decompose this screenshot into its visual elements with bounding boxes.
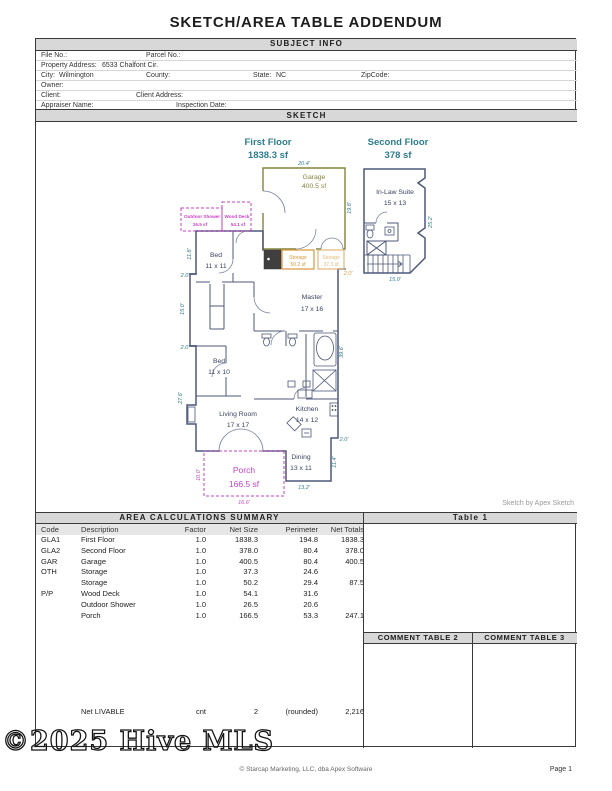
zipcode-label: ZipCode: [361,72,389,79]
state-value: NC [276,72,286,79]
cell-factor: 1.0 [176,535,206,546]
cell-net-totals: 400.5 [318,557,364,568]
outdoor-shower-label: Outdoor Shower [184,214,220,219]
dim-dining-bottom: 13.2' [298,485,311,491]
chimney-detail [267,258,270,261]
table-row: Storage 1.0 50.2 29.4 87.5 [36,578,363,589]
table-row: Porch 1.0 166.5 53.3 247.1 [36,611,363,622]
cell-net-totals: 1838.3 [318,535,364,546]
comment-table2-header: COMMENT TABLE 2 [378,633,459,642]
cell-net-size: 378.0 [206,546,258,557]
cell-factor: 1.0 [176,567,206,578]
kitchen-label: Kitchen [296,406,319,413]
sketch-bar: SKETCH [36,109,577,122]
cell-perimeter: 31.6 [258,589,318,600]
cell-code: OTH [41,567,81,578]
page-number: Page 1 [550,766,572,773]
side-tables: Table 1 COMMENT TABLE 2 COMMENT TABLE 3 [363,512,577,748]
bed2-size: 11 x 10 [208,369,230,376]
table-row: GLA1 First Floor 1.0 1838.3 194.8 1838.3 [36,535,363,546]
city-value: Wilmington [59,72,94,79]
cell-code [41,611,81,622]
cell-description: Porch [81,611,176,622]
table-row: OTH Storage 1.0 37.3 24.6 [36,567,363,578]
net-livable-label: Net LIVABLE [81,707,176,718]
info-row-3: City: Wilmington County: State: NC ZipCo… [36,71,577,81]
info-row-2: Property Address: 6533 Chalfont Cir. [36,61,577,71]
table1-bar: Table 1 [364,512,577,524]
subject-info-header: SUBJECT INFO [270,39,343,48]
city-label: City: [41,72,55,79]
in-law-suite-size: 15 x 13 [384,200,407,207]
dim-storage-jog: 2.0' [343,271,354,277]
col-code: Code [41,524,81,535]
sketch-header: SKETCH [286,111,326,120]
cell-net-size: 37.3 [206,567,258,578]
footer-copyright: © Starcap Marketing, LLC, dba Apex Softw… [0,766,612,773]
outdoor-shower-outline [181,208,222,231]
floor-plan-svg: First Floor 1838.3 sf Second Floor 378 s… [36,122,577,512]
cell-code: GLA1 [41,535,81,546]
client-address-label: Client Address: [136,92,183,99]
info-row-5: Client: Client Address: [36,91,577,101]
cell-perimeter: 80.4 [258,546,318,557]
col-net-size: Net Size [206,524,258,535]
area-summary-header: AREA CALCULATIONS SUMMARY [119,513,279,522]
property-address-value: 6533 Chalfont Cir. [102,62,158,69]
comment-table2-bar: COMMENT TABLE 2 [364,632,472,644]
appraiser-name-label: Appraiser Name: [41,102,94,109]
form-box: SUBJECT INFO File No.: Parcel No.: Prope… [35,38,576,747]
master-label: Master [302,294,324,301]
dim-left-bottom: 27.6' [178,391,184,405]
garage-label: Garage [303,174,326,181]
col-perimeter: Perimeter [258,524,318,535]
first-floor-title: First Floor [245,137,292,148]
net-livable-count: 2 [206,707,258,718]
kitchen-size: 14 x 12 [296,417,319,424]
cell-net-size: 54.1 [206,589,258,600]
table-row: Outdoor Shower 1.0 26.5 20.6 [36,600,363,611]
sketch-addendum-page: SKETCH/AREA TABLE ADDENDUM SUBJECT INFO … [0,0,612,791]
cell-net-size: 400.5 [206,557,258,568]
dim-right-side: 39.6' [339,345,345,358]
table-column-headers: Code Description Factor Net Size Perimet… [36,524,363,535]
property-address-label: Property Address: [41,62,97,69]
dim-left-jog1: 2.0' [180,273,191,279]
cell-code: GAR [41,557,81,568]
cell-description: Outdoor Shower [81,600,176,611]
cell-net-size: 50.2 [206,578,258,589]
cell-description: Second Floor [81,546,176,557]
living-room-label: Living Room [219,411,257,418]
cell-code [41,578,81,589]
outdoor-shower-area: 26.5 sf [193,222,208,227]
cell-code: GLA2 [41,546,81,557]
master-size: 17 x 16 [301,306,324,313]
cell-perimeter: 24.6 [258,567,318,578]
chimney [264,250,281,269]
living-room-size: 17 x 17 [227,422,250,429]
parcel-no-label: Parcel No.: [146,52,181,59]
dim-dining-right: 11.4' [332,455,338,467]
apex-sketch-credit: Sketch by Apex Sketch [502,500,574,507]
owner-label: Owner: [41,82,64,89]
cell-net-size: 1838.3 [206,535,258,546]
cell-net-totals [318,600,364,611]
county-label: County: [146,72,170,79]
storage1-area: 50.2 sf [290,262,306,268]
wood-deck-label: Wood Deck [225,214,250,219]
cell-net-totals: 378.0 [318,546,364,557]
cell-factor: 1.0 [176,611,206,622]
subject-info-bar: SUBJECT INFO [36,39,577,51]
comment-table3-header: COMMENT TABLE 3 [484,633,565,642]
dim-left-jog2: 2.0' [180,345,191,351]
area-calculations-table: AREA CALCULATIONS SUMMARY Code Descripti… [36,512,363,748]
comment-table3-bar: COMMENT TABLE 3 [472,632,577,644]
table-row: GAR Garage 1.0 400.5 80.4 400.5 [36,557,363,568]
info-row-4: Owner: [36,81,577,91]
cell-description: Storage [81,567,176,578]
page-title: SKETCH/AREA TABLE ADDENDUM [0,14,612,31]
comment-bars: COMMENT TABLE 2 COMMENT TABLE 3 [364,632,578,644]
hive-mls-watermark: ©2025 Hive MLS [2,726,274,757]
cell-perimeter: 80.4 [258,557,318,568]
table1-header: Table 1 [453,513,488,522]
cell-perimeter: 194.8 [258,535,318,546]
dim-left-mid: 15.0' [180,302,186,315]
porch-area: 166.5 sf [229,479,260,489]
net-livable-note: (rounded) [258,707,318,718]
dining-label: Dining [291,454,310,461]
garage-area: 400.5 sf [302,183,326,190]
net-livable-total: 2,216 [318,707,364,718]
bed1-label: Bed [210,252,222,259]
cell-code: P/P [41,589,81,600]
cell-net-totals: 87.5 [318,578,364,589]
cell-factor: 1.0 [176,589,206,600]
cell-code [41,600,81,611]
cell-net-size: 166.5 [206,611,258,622]
dim-porch-left: 10.0' [196,468,202,481]
cell-description: Storage [81,578,176,589]
dim-second-depth: 25.2' [428,215,434,229]
storage2-area: 37.3 sf [323,262,339,268]
inspection-date-label: Inspection Date: [176,102,227,109]
cell-description: First Floor [81,535,176,546]
dim-garage-depth: 19.8' [347,201,353,214]
file-no-label: File No.: [41,52,67,59]
cell-perimeter: 20.6 [258,600,318,611]
cell-factor: 1.0 [176,546,206,557]
cell-factor: 1.0 [176,578,206,589]
storage2-label: Storage [322,255,340,261]
second-floor-outline [364,169,425,273]
cell-description: Wood Deck [81,589,176,600]
cell-perimeter: 53.3 [258,611,318,622]
first-floor-area: 1838.3 sf [248,150,289,161]
dim-garage-width: 20.4' [297,161,311,167]
col-net-totals: Net Totals [318,524,364,535]
area-summary-bar: AREA CALCULATIONS SUMMARY [36,512,363,524]
net-livable-unit: cnt [176,707,206,718]
dim-second-width: 15.0' [389,277,402,283]
dining-size: 13 x 11 [290,465,312,472]
second-floor-area: 378 sf [385,150,413,161]
dim-left-top: 11.8' [187,247,193,259]
table-row: P/P Wood Deck 1.0 54.1 31.6 [36,589,363,600]
cell-net-totals: 247.1 [318,611,364,622]
in-law-suite-label: In-Law Suite [376,189,414,196]
storage1-label: Storage [289,255,307,261]
cell-factor: 1.0 [176,557,206,568]
info-row-1: File No.: Parcel No.: [36,51,577,61]
state-label: State: [253,72,271,79]
cell-net-size: 26.5 [206,600,258,611]
client-label: Client: [41,92,61,99]
cell-net-totals [318,589,364,600]
cell-perimeter: 29.4 [258,578,318,589]
bed1-size: 11 x 11 [205,263,227,270]
cell-description: Garage [81,557,176,568]
comment-divider [472,632,473,748]
col-factor: Factor [176,524,206,535]
dim-porch-bottom: 16.6' [238,500,251,506]
sketch-panel: First Floor 1838.3 sf Second Floor 378 s… [36,122,577,512]
table-row: GLA2 Second Floor 1.0 378.0 80.4 378.0 [36,546,363,557]
cell-net-totals [318,567,364,578]
wood-deck-area: 54.1 sf [231,222,246,227]
net-livable-row: Net LIVABLE cnt 2 (rounded) 2,216 [36,707,368,718]
second-floor-title: Second Floor [368,137,429,148]
bed2-label: Bed [213,358,225,365]
dim-kitchen-jog: 2.0' [339,437,350,443]
col-description: Description [81,524,176,535]
porch-label: Porch [233,465,255,475]
cell-factor: 1.0 [176,600,206,611]
